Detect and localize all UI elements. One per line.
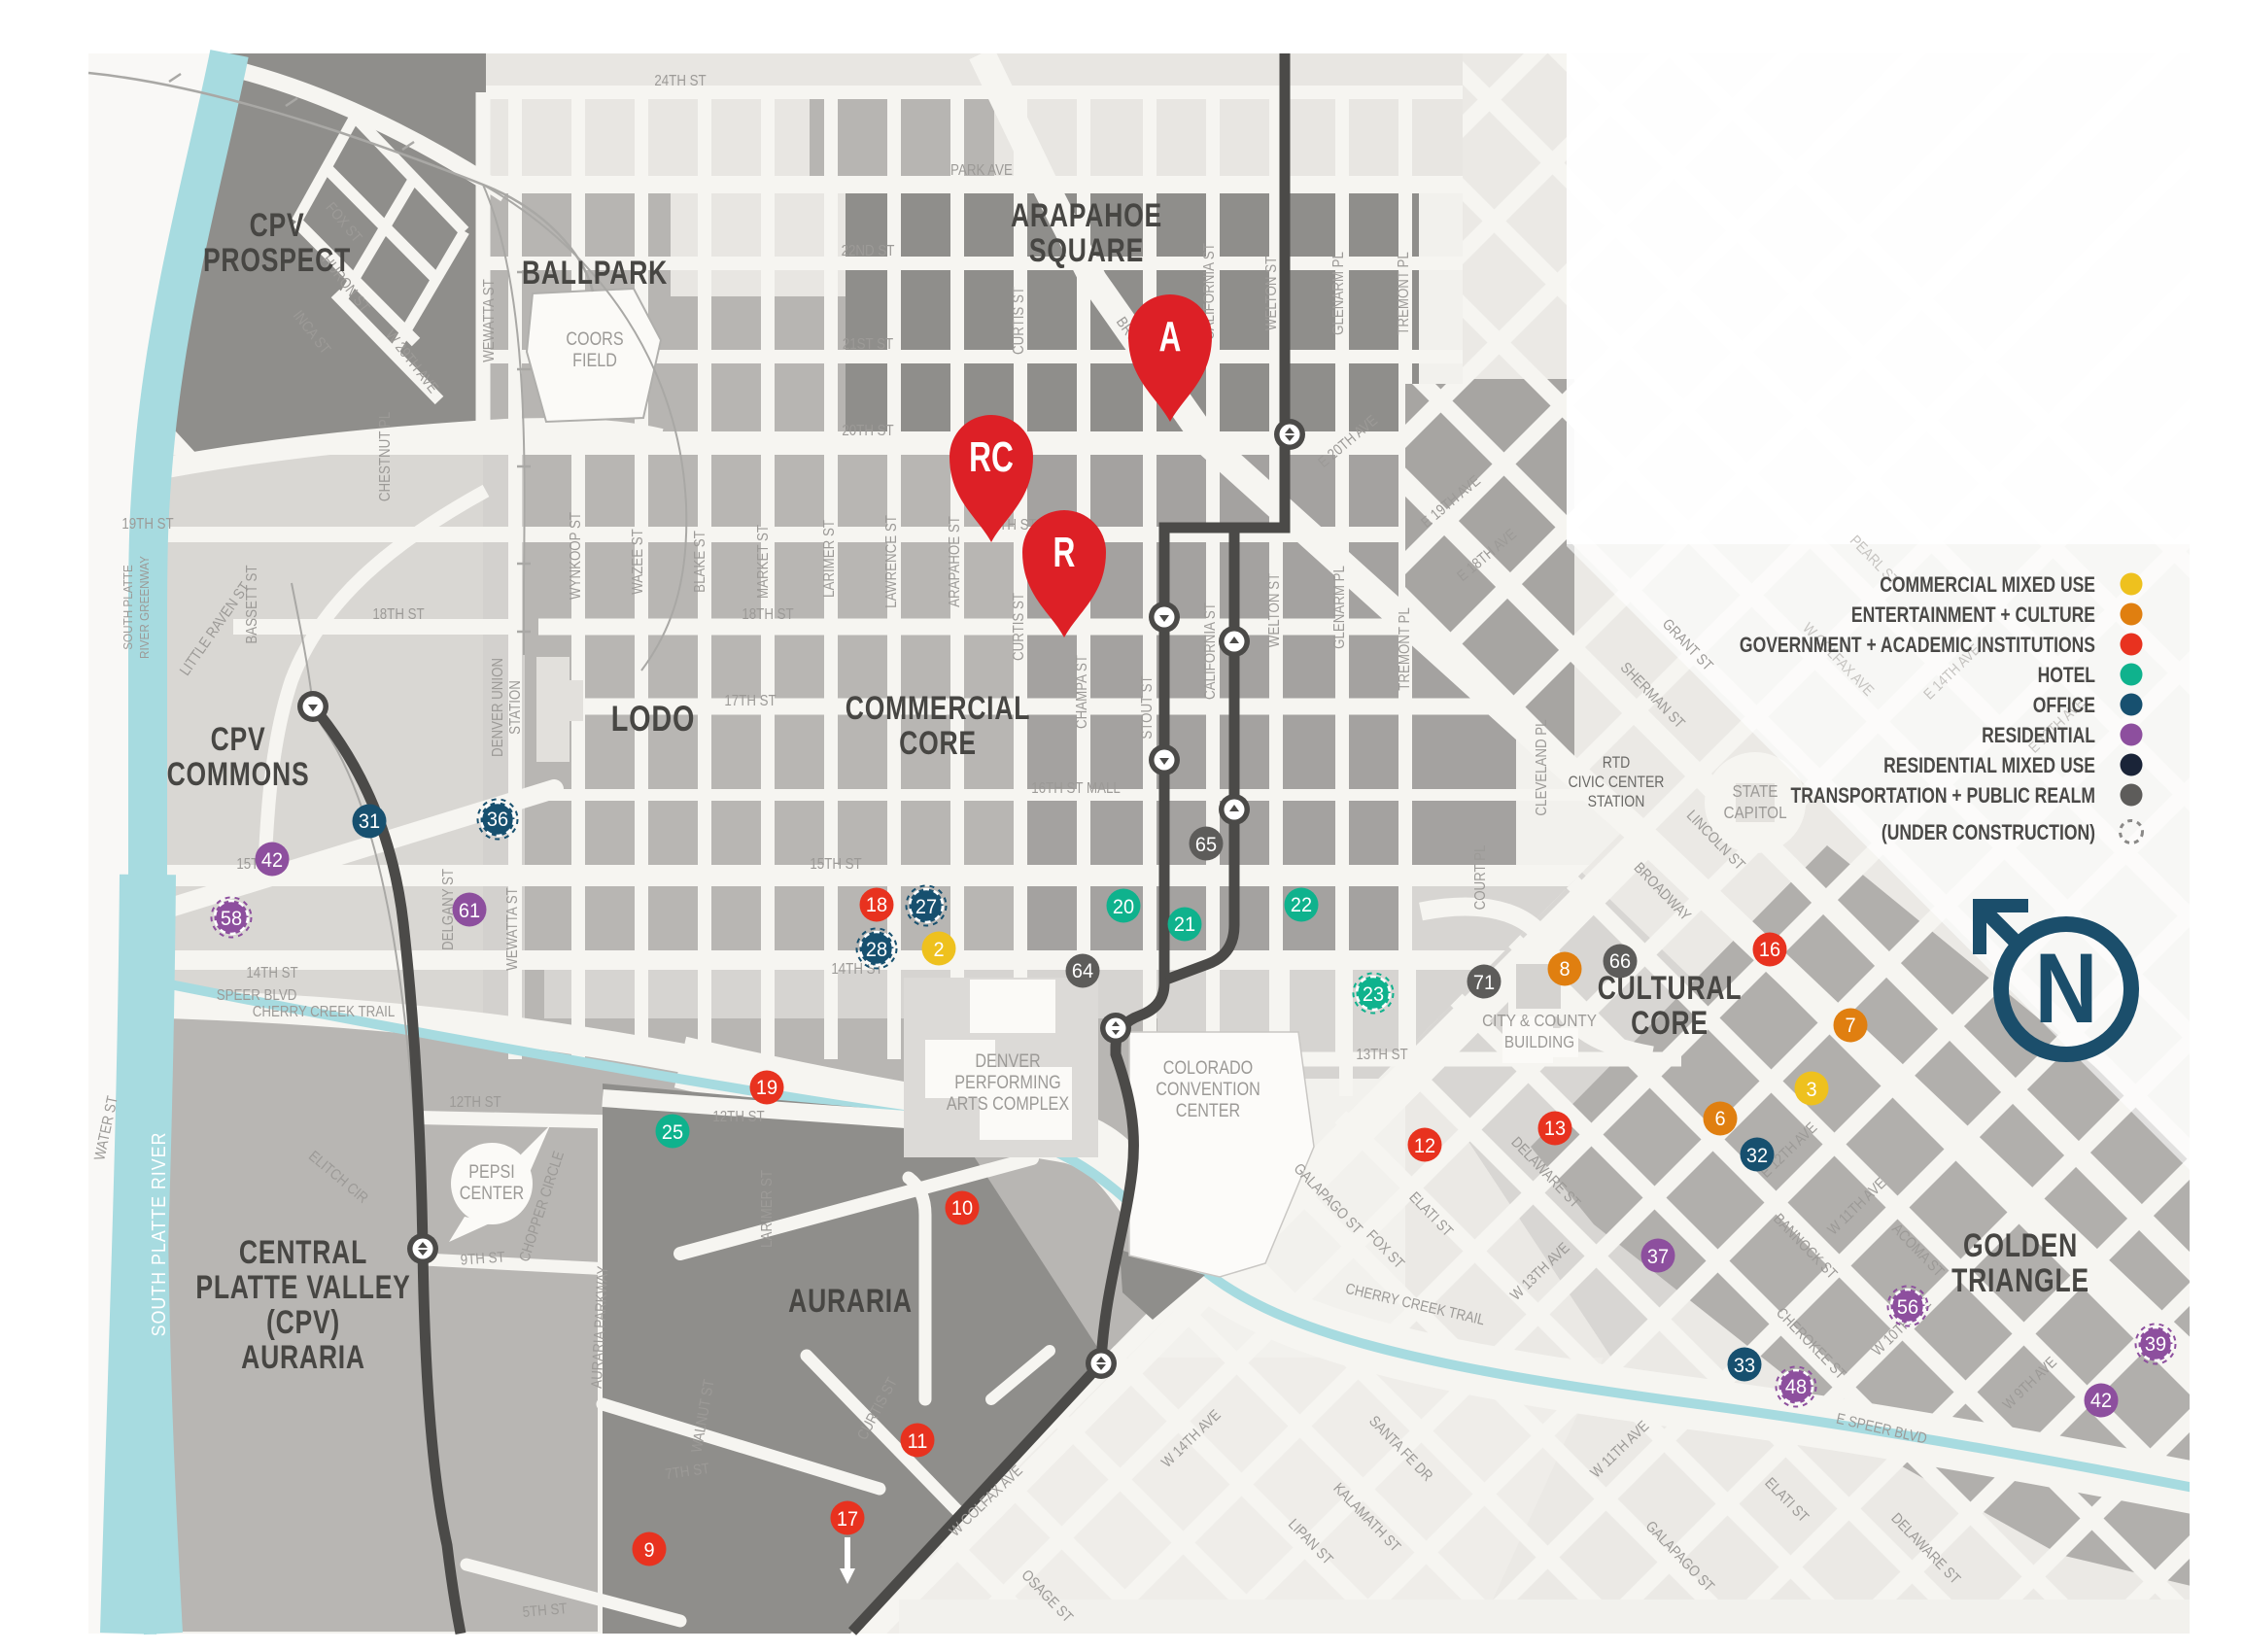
svg-text:STATE: STATE <box>1733 781 1778 801</box>
svg-text:(UNDER CONSTRUCTION): (UNDER CONSTRUCTION) <box>1882 821 2095 845</box>
svg-text:GLENARM PL: GLENARM PL <box>1330 252 1347 335</box>
svg-text:GLENARM PL: GLENARM PL <box>1331 566 1348 649</box>
svg-text:WYNKOOP ST: WYNKOOP ST <box>568 512 584 600</box>
svg-text:12TH ST: 12TH ST <box>449 1094 501 1111</box>
svg-text:17TH ST: 17TH ST <box>724 693 776 709</box>
svg-text:24TH ST: 24TH ST <box>654 73 706 89</box>
svg-text:CHERRY CREEK TRAIL: CHERRY CREEK TRAIL <box>253 1004 396 1020</box>
svg-text:3: 3 <box>1806 1079 1816 1102</box>
svg-text:37: 37 <box>1647 1246 1669 1269</box>
svg-text:COLORADO: COLORADO <box>1163 1057 1253 1079</box>
svg-text:WELTON ST: WELTON ST <box>1263 257 1280 331</box>
svg-text:COURT PL: COURT PL <box>1472 845 1489 911</box>
svg-text:AURARIA: AURARIA <box>241 1339 365 1376</box>
svg-text:ARAPAHOE ST: ARAPAHOE ST <box>947 516 963 607</box>
svg-text:PERFORMING: PERFORMING <box>954 1072 1060 1093</box>
svg-text:RTD: RTD <box>1603 754 1631 772</box>
svg-text:21ST ST: 21ST ST <box>843 336 893 353</box>
svg-text:CENTER: CENTER <box>1176 1100 1240 1121</box>
svg-text:9: 9 <box>643 1539 654 1563</box>
svg-text:ARAPAHOE: ARAPAHOE <box>1011 197 1162 234</box>
svg-text:12TH ST: 12TH ST <box>712 1109 764 1125</box>
svg-text:STATION: STATION <box>507 680 524 735</box>
svg-text:(CPV): (CPV) <box>266 1304 340 1341</box>
svg-text:13: 13 <box>1544 1118 1566 1141</box>
svg-text:CORE: CORE <box>899 725 977 762</box>
svg-text:10: 10 <box>951 1197 973 1221</box>
svg-text:CITY & COUNTY: CITY & COUNTY <box>1482 1011 1597 1030</box>
svg-text:STOUT ST: STOUT ST <box>1139 675 1156 740</box>
svg-text:FIELD: FIELD <box>572 350 617 371</box>
svg-text:RESIDENTIAL: RESIDENTIAL <box>1982 724 2095 748</box>
svg-text:15TH ST: 15TH ST <box>810 856 861 873</box>
svg-text:LARIMER ST: LARIMER ST <box>821 520 838 598</box>
svg-text:WAZEE ST: WAZEE ST <box>630 529 646 595</box>
svg-text:CORE: CORE <box>1631 1005 1709 1042</box>
svg-text:20TH ST: 20TH ST <box>842 423 893 439</box>
svg-text:18TH ST: 18TH ST <box>742 606 793 623</box>
svg-text:16: 16 <box>1759 939 1780 962</box>
svg-text:SOUTH PLATTE: SOUTH PLATTE <box>121 565 135 649</box>
svg-text:DENVER: DENVER <box>975 1050 1040 1072</box>
svg-text:66: 66 <box>1609 950 1631 974</box>
svg-text:CPV: CPV <box>250 207 305 244</box>
svg-text:TRANSPORTATION + PUBLIC REALM: TRANSPORTATION + PUBLIC REALM <box>1791 784 2095 809</box>
svg-text:CPV: CPV <box>211 721 266 758</box>
svg-text:WEWATTA ST: WEWATTA ST <box>504 887 521 971</box>
svg-text:33: 33 <box>1734 1355 1755 1378</box>
svg-text:CALIFORNIA ST: CALIFORNIA ST <box>1202 602 1219 700</box>
svg-text:18: 18 <box>866 894 887 917</box>
svg-text:TREMONT PL: TREMONT PL <box>1397 607 1413 691</box>
svg-text:CHAMPA ST: CHAMPA ST <box>1074 655 1090 729</box>
svg-text:9TH ST: 9TH ST <box>460 1250 505 1269</box>
svg-text:ENTERTAINMENT + CULTURE: ENTERTAINMENT + CULTURE <box>1851 603 2095 628</box>
svg-text:6: 6 <box>1714 1108 1725 1131</box>
svg-text:SQUARE: SQUARE <box>1029 232 1144 269</box>
svg-text:23: 23 <box>1363 983 1384 1007</box>
svg-text:21: 21 <box>1174 913 1195 937</box>
svg-text:48: 48 <box>1785 1376 1807 1399</box>
svg-text:20: 20 <box>1113 896 1134 919</box>
svg-text:COMMERCIAL MIXED USE: COMMERCIAL MIXED USE <box>1880 573 2095 598</box>
svg-text:CLEVELAND PL: CLEVELAND PL <box>1534 719 1550 815</box>
svg-text:28: 28 <box>866 939 887 962</box>
svg-text:2: 2 <box>933 939 944 962</box>
svg-text:64: 64 <box>1072 960 1093 983</box>
svg-text:25: 25 <box>662 1121 683 1145</box>
svg-text:BLAKE ST: BLAKE ST <box>692 531 708 593</box>
svg-text:PARK AVE: PARK AVE <box>950 162 1013 179</box>
svg-text:22: 22 <box>1291 894 1312 917</box>
svg-text:BALLPARK: BALLPARK <box>522 255 668 292</box>
svg-text:RC: RC <box>969 433 1014 481</box>
svg-text:32: 32 <box>1746 1145 1768 1168</box>
svg-text:GOVERNMENT + ACADEMIC INSTITUT: GOVERNMENT + ACADEMIC INSTITUTIONS <box>1740 634 2095 658</box>
svg-text:BUILDING: BUILDING <box>1504 1032 1574 1051</box>
svg-text:HOTEL: HOTEL <box>2038 664 2095 688</box>
svg-text:LAWRENCE ST: LAWRENCE ST <box>883 515 900 608</box>
svg-text:TRIANGLE: TRIANGLE <box>1951 1262 2089 1299</box>
svg-text:13TH ST: 13TH ST <box>1356 1047 1407 1063</box>
svg-text:STATION: STATION <box>1588 793 1645 810</box>
svg-text:PEPSI: PEPSI <box>468 1161 515 1183</box>
svg-text:7: 7 <box>1845 1015 1855 1038</box>
svg-text:ARTS COMPLEX: ARTS COMPLEX <box>947 1093 1069 1115</box>
svg-text:CHESTNUT PL: CHESTNUT PL <box>377 412 394 501</box>
svg-text:14TH ST: 14TH ST <box>246 965 297 981</box>
svg-text:42: 42 <box>2090 1390 2112 1413</box>
svg-text:19: 19 <box>756 1077 777 1100</box>
svg-text:GOLDEN: GOLDEN <box>1963 1227 2078 1264</box>
svg-text:CENTER: CENTER <box>460 1183 524 1204</box>
svg-text:PLATTE VALLEY: PLATTE VALLEY <box>195 1269 410 1306</box>
svg-text:12: 12 <box>1414 1135 1435 1158</box>
svg-text:AURARIA: AURARIA <box>788 1283 913 1320</box>
svg-text:CURTIS ST: CURTIS ST <box>1011 593 1027 661</box>
svg-text:18TH ST: 18TH ST <box>372 606 424 623</box>
svg-text:PROSPECT: PROSPECT <box>203 242 351 279</box>
svg-text:LODO: LODO <box>611 700 695 740</box>
svg-text:SPEER BLVD: SPEER BLVD <box>217 987 297 1004</box>
svg-text:61: 61 <box>459 900 480 923</box>
svg-text:31: 31 <box>359 810 380 834</box>
svg-text:COMMERCIAL: COMMERCIAL <box>846 690 1030 727</box>
svg-text:19TH ST: 19TH ST <box>121 516 173 533</box>
svg-text:TREMONT PL: TREMONT PL <box>1396 252 1412 335</box>
svg-text:11: 11 <box>908 1430 928 1454</box>
svg-text:WELTON ST: WELTON ST <box>1266 573 1283 648</box>
svg-text:CURTIS ST: CURTIS ST <box>1011 287 1027 355</box>
svg-text:CIVIC CENTER: CIVIC CENTER <box>1569 774 1665 791</box>
svg-text:MARKET ST: MARKET ST <box>755 525 772 599</box>
svg-text:R: R <box>1053 529 1076 576</box>
svg-text:36: 36 <box>487 809 508 832</box>
svg-text:RIVER GREENWAY: RIVER GREENWAY <box>137 556 152 659</box>
svg-text:SOUTH PLATTE RIVER: SOUTH PLATTE RIVER <box>149 1132 170 1337</box>
svg-text:CONVENTION: CONVENTION <box>1156 1079 1260 1100</box>
svg-text:16TH ST MALL: 16TH ST MALL <box>1031 780 1121 797</box>
svg-text:OFFICE: OFFICE <box>2033 694 2095 718</box>
svg-text:RESIDENTIAL MIXED USE: RESIDENTIAL MIXED USE <box>1883 754 2095 778</box>
svg-text:71: 71 <box>1473 972 1495 995</box>
svg-text:A: A <box>1159 313 1182 361</box>
svg-text:COMMONS: COMMONS <box>167 756 310 793</box>
svg-text:CENTRAL: CENTRAL <box>239 1234 367 1271</box>
svg-text:39: 39 <box>2145 1333 2166 1357</box>
svg-text:COORS: COORS <box>566 328 623 350</box>
svg-text:LARIMER ST: LARIMER ST <box>759 1170 776 1248</box>
svg-text:22ND ST: 22ND ST <box>842 243 895 259</box>
svg-text:56: 56 <box>1897 1296 1918 1320</box>
svg-text:58: 58 <box>221 908 242 931</box>
svg-text:8: 8 <box>1559 958 1570 981</box>
svg-text:CAPITOL: CAPITOL <box>1723 803 1786 822</box>
svg-text:27: 27 <box>915 896 937 919</box>
svg-text:17: 17 <box>837 1508 858 1532</box>
svg-text:BASSETT ST: BASSETT ST <box>244 565 260 643</box>
svg-text:WEWATTA ST: WEWATTA ST <box>481 279 498 362</box>
svg-text:DENVER UNION: DENVER UNION <box>490 658 506 757</box>
svg-text:65: 65 <box>1195 834 1217 857</box>
svg-text:N: N <box>2035 934 2098 1045</box>
svg-text:42: 42 <box>261 849 283 873</box>
